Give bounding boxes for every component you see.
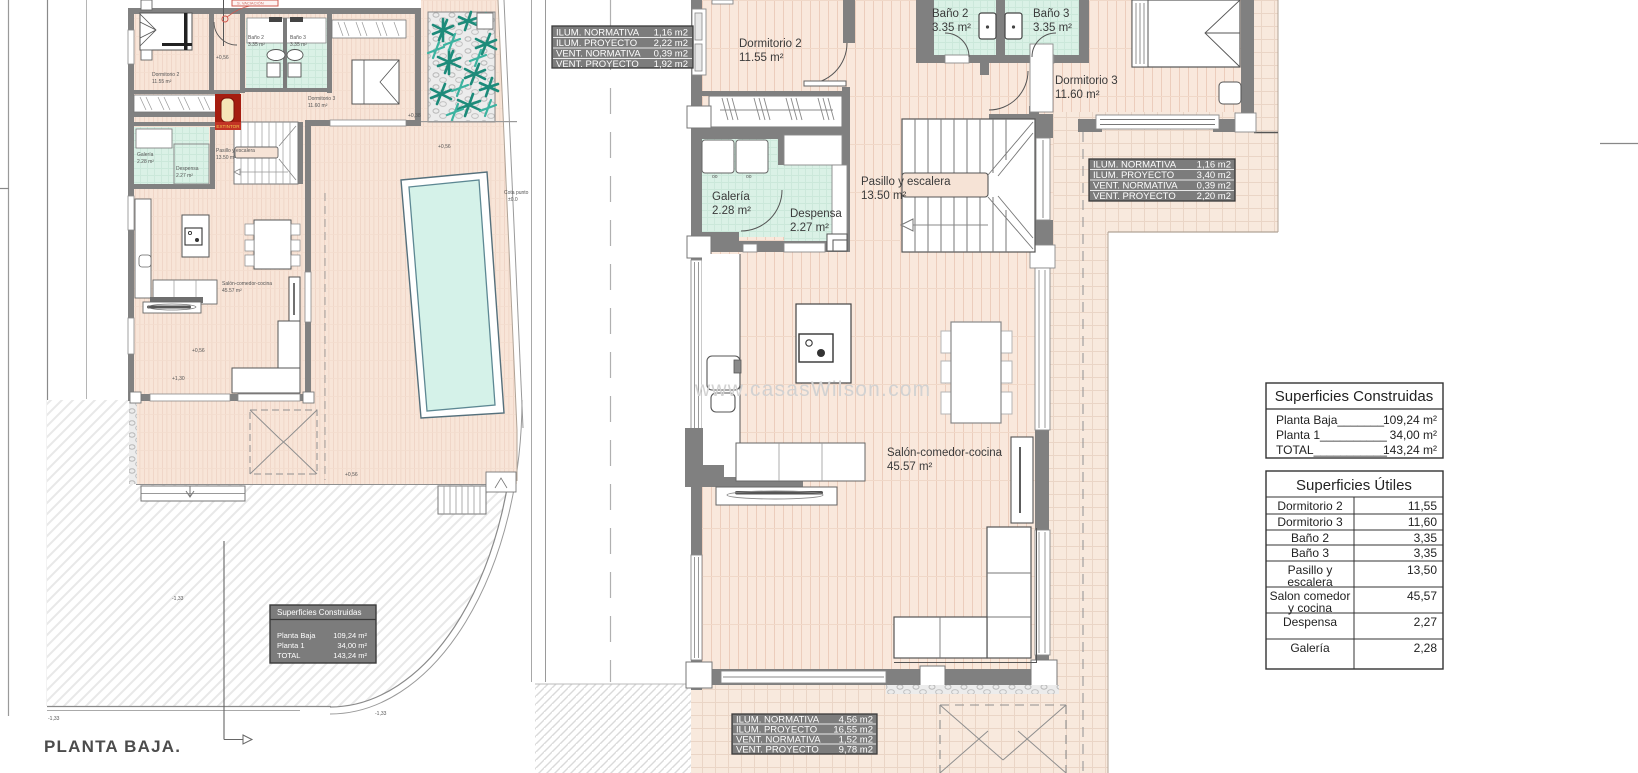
svg-text:45,57: 45,57 [1407,589,1437,603]
svg-text:0,39 m2: 0,39 m2 [1197,181,1231,192]
svg-text:Baño 2: Baño 2 [248,35,264,41]
svg-text:Galería: Galería [712,191,750,203]
svg-text:Dormitorio 2: Dormitorio 2 [739,38,802,50]
svg-text:Dormitorio 2: Dormitorio 2 [152,72,179,78]
svg-text:11.60 m²: 11.60 m² [308,103,328,109]
svg-text:Salón-comedor-cocina: Salón-comedor-cocina [222,281,272,287]
svg-text:www.casasWilson.com: www.casasWilson.com [694,378,931,401]
svg-text:Galería: Galería [137,152,154,158]
svg-text:11.55 m²: 11.55 m² [152,79,172,85]
svg-text:2.28 m²: 2.28 m² [137,159,154,165]
svg-text:ILUM. PROYECTO: ILUM. PROYECTO [556,38,637,49]
svg-text:143,24 m²: 143,24 m² [333,651,367,660]
svg-text:Superficies Construidas: Superficies Construidas [1275,388,1433,405]
svg-text:oo: oo [746,174,752,180]
svg-text:3.35 m²: 3.35 m² [932,22,971,34]
svg-text:Salón-comedor-cocina: Salón-comedor-cocina [887,447,1003,459]
svg-text:34,00 m²: 34,00 m² [337,641,367,650]
svg-text:3.35 m²: 3.35 m² [248,42,265,48]
svg-text:2.27 m²: 2.27 m² [176,173,193,179]
svg-text:Baño 3: Baño 3 [1291,546,1329,560]
svg-text:3.35 m²: 3.35 m² [290,42,307,48]
svg-text:45.57 m²: 45.57 m² [887,461,933,473]
svg-text:45.57 m²: 45.57 m² [222,288,242,294]
svg-text:±0.0: ±0.0 [508,197,518,203]
svg-text:13,50: 13,50 [1407,563,1437,577]
svg-text:VENT. PROYECTO: VENT. PROYECTO [1093,191,1176,202]
svg-text:109,24 m²: 109,24 m² [333,631,367,640]
svg-text:2,27: 2,27 [1414,615,1438,629]
svg-text:Dormitorio 3: Dormitorio 3 [1277,515,1343,529]
svg-text:Pasillo y escalera: Pasillo y escalera [861,176,951,188]
svg-text:11,60: 11,60 [1408,515,1437,529]
svg-text:1,92 m2: 1,92 m2 [654,59,688,70]
svg-text:EXTINTOR: EXTINTOR [216,124,240,129]
svg-text:1,16 m2: 1,16 m2 [1197,160,1231,171]
svg-text:Planta 1__________: Planta 1__________ [1276,428,1387,442]
svg-text:Planta Baja: Planta Baja [277,631,316,640]
svg-text:TOTAL___________: TOTAL___________ [1276,443,1387,457]
svg-text:VENT. PROYECTO: VENT. PROYECTO [556,59,639,70]
svg-text:2.28 m²: 2.28 m² [712,205,751,217]
svg-text:-1,33: -1,33 [48,716,60,722]
svg-text:+0,56: +0,56 [192,348,205,354]
svg-text:2.27 m²: 2.27 m² [790,222,829,234]
svg-text:1,16 m2: 1,16 m2 [654,28,688,39]
svg-text:0,39 m2: 0,39 m2 [654,49,688,60]
svg-text:11.55 m²: 11.55 m² [739,52,784,64]
svg-text:Baño 2: Baño 2 [932,8,968,20]
svg-text:S. VACIACIÓN: S. VACIACIÓN [237,1,264,6]
svg-text:-1,33: -1,33 [172,596,184,602]
svg-text:VENT. PROYECTO: VENT. PROYECTO [736,745,819,756]
svg-text:3,35: 3,35 [1414,531,1438,545]
svg-text:Baño 3: Baño 3 [290,35,306,41]
svg-text:11.60 m²: 11.60 m² [1055,89,1100,101]
svg-text:ILUM. PROYECTO: ILUM. PROYECTO [1093,170,1174,181]
svg-text:PLANTA BAJA.: PLANTA BAJA. [44,737,181,756]
svg-text:Dormitorio 3: Dormitorio 3 [1055,75,1118,87]
svg-text:109,24 m²: 109,24 m² [1383,413,1437,427]
svg-text:y cocina: y cocina [1288,601,1332,615]
svg-text:9,78 m2: 9,78 m2 [839,745,873,756]
svg-text:VENT. NORMATIVA: VENT. NORMATIVA [556,49,641,60]
svg-text:+1,30: +1,30 [172,376,185,382]
svg-text:13.50 m²: 13.50 m² [861,190,907,202]
svg-text:Dormitorio 2: Dormitorio 2 [1277,499,1343,513]
svg-text:ILUM. NORMATIVA: ILUM. NORMATIVA [556,28,640,39]
svg-text:Despensa: Despensa [790,208,842,220]
svg-text:Baño 2: Baño 2 [1291,531,1329,545]
svg-text:Superficies Útiles: Superficies Útiles [1296,477,1412,494]
svg-text:143,24 m²: 143,24 m² [1383,443,1437,457]
svg-text:Despensa: Despensa [176,166,199,172]
svg-text:+0,56: +0,56 [216,55,229,61]
svg-text:Planta 1: Planta 1 [277,641,305,650]
svg-text:Baño 3: Baño 3 [1033,8,1069,20]
svg-text:ILUM. NORMATIVA: ILUM. NORMATIVA [1093,160,1177,171]
svg-text:VENT. NORMATIVA: VENT. NORMATIVA [1093,181,1178,192]
svg-text:Pasillo y escalera: Pasillo y escalera [216,148,255,154]
svg-text:13.50 m²: 13.50 m² [216,155,236,161]
svg-text:escalera: escalera [1287,575,1333,589]
svg-text:2,22 m2: 2,22 m2 [654,38,688,49]
svg-text:2,20 m2: 2,20 m2 [1197,191,1231,202]
svg-text:11,55: 11,55 [1408,499,1437,513]
svg-text:oo: oo [712,174,718,180]
svg-text:Dormitorio 3: Dormitorio 3 [308,96,335,102]
svg-text:3,40 m2: 3,40 m2 [1197,170,1231,181]
svg-text:+0,56: +0,56 [438,144,451,150]
svg-text:-1,33: -1,33 [375,711,387,717]
svg-text:TOTAL: TOTAL [277,651,300,660]
svg-text:3.35 m²: 3.35 m² [1033,22,1072,34]
svg-text:+0,38: +0,38 [408,113,421,119]
svg-text:Galería: Galería [1290,641,1330,655]
svg-text:+0,56: +0,56 [345,472,358,478]
svg-text:2,28: 2,28 [1414,641,1438,655]
svg-text:Cota punto: Cota punto [504,190,529,196]
svg-text:Despensa: Despensa [1283,615,1337,629]
svg-text:34,00 m²: 34,00 m² [1390,428,1437,442]
svg-text:Planta Baja_______: Planta Baja_______ [1276,413,1384,427]
svg-text:Superficies Construidas: Superficies Construidas [277,608,361,617]
svg-text:3,35: 3,35 [1414,546,1438,560]
